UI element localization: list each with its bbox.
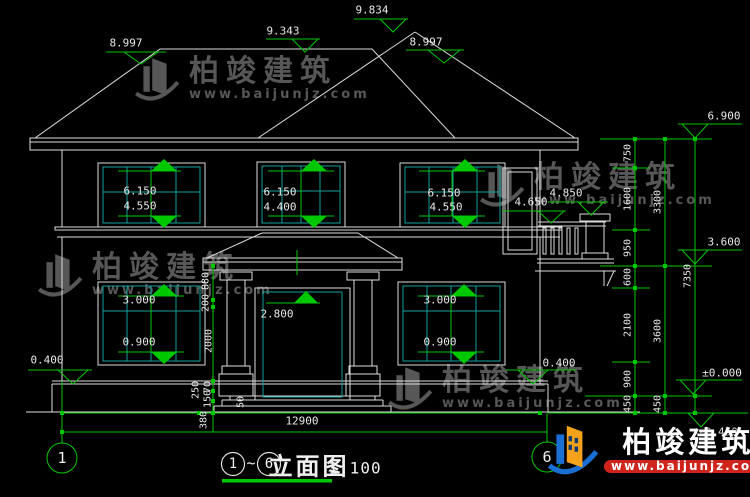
baijun-logo: 柏竣建筑 www.baijunjz.com (546, 422, 750, 478)
elevation-label-roof-left-ridge: 9.343 (266, 25, 299, 38)
floor-band (55, 227, 562, 237)
dim-right-2100: 2100 (623, 313, 634, 337)
eave-fascia (30, 138, 578, 150)
baluster (559, 228, 562, 254)
dim-entry-2000: 2000 (204, 329, 215, 353)
window-label-f1-left-head: 3.000 (122, 294, 155, 307)
elevation-drawing: 柏竣建筑 www.baijunjz.com 柏竣建筑 www.baijunjz.… (0, 0, 750, 497)
elevation-label-roof-left-eave: 8.997 (109, 37, 142, 50)
elevation-label-roof-right-ridge: 9.834 (355, 4, 388, 17)
window-label-f2-left-sill: 4.550 (123, 200, 156, 213)
elevation-label-plinth-right: 0.400 (542, 357, 575, 370)
elevation-label-roof-right-eave: 8.997 (409, 36, 442, 49)
title-separator: ~ (246, 454, 255, 472)
window-label-f1-right-sill: 0.900 (423, 336, 456, 349)
elevation-label-ground: ±0.000 (702, 367, 742, 380)
dim-right-450b: 450 (653, 395, 664, 413)
window-label-f2-mid-head: 6.150 (263, 186, 296, 199)
dim-right-600: 600 (623, 268, 634, 286)
dim-entry-250: 250 (191, 381, 202, 399)
entry-door-frame (255, 288, 350, 400)
balcony-pillar (580, 214, 610, 259)
dim-right-3600: 3600 (653, 319, 664, 343)
logo-brand: 柏竣建筑 (622, 427, 750, 457)
axis-bubble-left-number: 1 (57, 449, 66, 467)
logo-url: www.baijunjz.com (604, 460, 750, 473)
elevation-label-balcony-rail: 4.650 (514, 196, 547, 209)
porch-column-right (346, 272, 380, 396)
dim-right-450a: 450 (623, 395, 634, 413)
dim-right-900: 900 (623, 370, 634, 388)
title-axis-from: 1 (229, 456, 237, 472)
dim-bottom-12900: 12900 (285, 415, 318, 428)
dim-entry-200: 200 (201, 294, 212, 312)
dim-bottom-380: 380 (199, 411, 210, 429)
window-label-f1-left-sill: 0.900 (122, 336, 155, 349)
dim-right-750: 750 (623, 144, 634, 162)
window-label-f2-left-head: 6.150 (123, 185, 156, 198)
dim-entry-150: 150 (203, 390, 214, 408)
window-label-f2-right-head: 6.150 (427, 187, 460, 200)
baijun-logo-icon (546, 422, 598, 478)
dim-entry-880: 880 (201, 272, 212, 290)
baluster (543, 228, 546, 254)
dimension-linework (28, 19, 748, 473)
elevation-label-right-floor2: 3.600 (707, 236, 740, 249)
dim-right-7350: 7350 (683, 264, 694, 288)
window-label-f1-right-head: 3.000 (423, 294, 456, 307)
entry-canopy (203, 233, 402, 270)
elevation-label-plinth-left: 0.400 (30, 354, 63, 367)
dim-right-950: 950 (623, 239, 634, 257)
dim-entry-50: 50 (236, 396, 247, 408)
window-label-f2-right-sill: 4.550 (429, 201, 462, 214)
window-label-f2-mid-sill: 4.400 (263, 201, 296, 214)
dim-right-3300: 3300 (653, 190, 664, 214)
door-head-label: 2.800 (260, 308, 293, 321)
balcony-slab (535, 259, 616, 286)
dim-right-1600: 1600 (623, 187, 634, 211)
baluster (567, 228, 570, 254)
drawing-scale: 1:100 (328, 459, 381, 478)
balcony-railing (538, 222, 606, 226)
baluster (551, 228, 554, 254)
elevation-label-right-eave: 6.900 (707, 110, 740, 123)
building-linework (26, 32, 640, 412)
porch-column-left (219, 272, 253, 396)
elevation-label-balcony-pillar: 4.850 (549, 187, 582, 200)
baluster (575, 228, 578, 254)
